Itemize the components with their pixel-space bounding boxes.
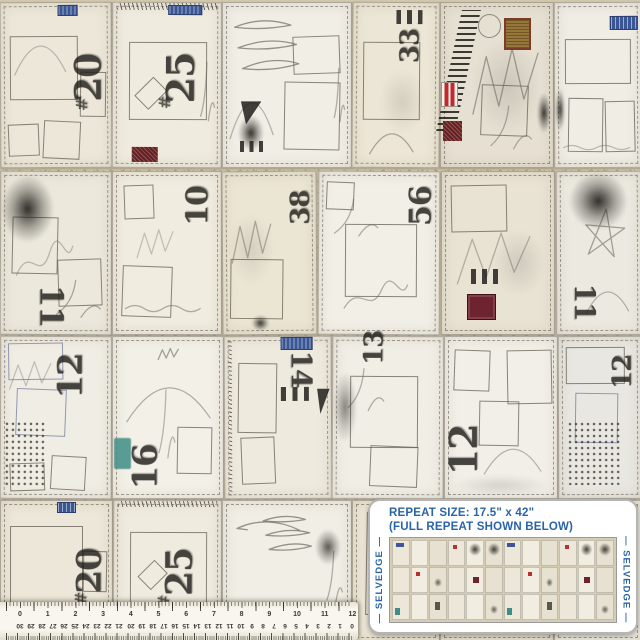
preview-patch: [522, 567, 540, 593]
ruler-inch-label: 2: [73, 611, 77, 618]
stamp-number: 33: [399, 29, 421, 63]
dash3-accent: [240, 141, 263, 152]
blue-accent: [610, 16, 638, 30]
ruler-cm-label: 27: [50, 622, 57, 629]
maroon-accent: [467, 294, 496, 320]
sketch-squiggle: [157, 345, 181, 364]
ruler-cm-label: 10: [237, 622, 244, 629]
dash3-accent: [396, 10, 422, 25]
ruler-cm-label: 25: [72, 622, 79, 629]
wash-accent: [378, 68, 426, 134]
fabric-patch: 20#: [0, 2, 112, 169]
sketch-rect: [176, 427, 212, 475]
ruler-inch-label: 1: [46, 611, 50, 618]
wash-accent: [227, 212, 274, 285]
fabric-patch: 13: [332, 336, 445, 500]
preview-patch: [466, 540, 484, 566]
preview-patch: [578, 540, 596, 566]
preview-dark-sm: [601, 605, 609, 614]
sketch-rect: [49, 455, 86, 491]
fabric-patch: 38: [221, 171, 317, 336]
ruler-cm-label: 7: [272, 622, 276, 629]
preview-patch: [522, 594, 540, 620]
fabric-patch: 12: [0, 336, 112, 499]
sketch-squiggle: [231, 515, 305, 549]
ruler-cm-label: 17: [160, 622, 167, 629]
ruler-inch-label: 9: [267, 611, 271, 618]
preview-patch: [541, 567, 559, 593]
preview-patch: [411, 540, 429, 566]
preview-dark: [467, 541, 483, 565]
selvedge-label-right: — SELVEDGE —: [619, 537, 633, 623]
preview-patch: [559, 594, 577, 620]
stamp-number: 11: [572, 283, 596, 320]
stamp-number: 11: [37, 285, 64, 328]
preview-red: [528, 572, 532, 576]
redweave-accent: [443, 121, 462, 141]
preview-patch: [411, 567, 429, 593]
ruler-cm-label: 19: [138, 622, 145, 629]
preview-patch: [504, 594, 522, 620]
preview-patch: [466, 594, 484, 620]
sketch-squiggle: [479, 426, 546, 482]
stamp-number: 20: [74, 54, 105, 102]
fabric-patch: 11: [0, 171, 112, 335]
ruler-cm-label: 9: [250, 622, 254, 629]
fabric-patch: [441, 171, 555, 335]
blue-accent: [58, 5, 78, 17]
sketch-squiggle: [562, 134, 631, 159]
ruler-cm-label: 4: [305, 622, 309, 629]
sketch-rect: [453, 349, 490, 391]
ruler-inch-label: 6: [184, 611, 188, 618]
preview-patch: [448, 594, 466, 620]
preview-dark: [579, 541, 595, 565]
preview-patch: [485, 567, 503, 593]
zzside-accent: [229, 340, 233, 495]
preview-blue: [507, 543, 515, 547]
preview-red: [416, 572, 420, 576]
stamp-number: 20: [75, 548, 104, 593]
preview-dark-sm: [434, 578, 442, 587]
stamp-number: 12: [57, 353, 86, 398]
sketch-squiggle: [329, 188, 383, 245]
sketch-squiggle: [337, 272, 412, 324]
smudge-accent: [315, 529, 341, 565]
sketch-squiggle: [333, 52, 346, 134]
stamp-number: 16: [132, 445, 161, 490]
sketch-squiggle: [7, 353, 57, 401]
preview-patch: [559, 567, 577, 593]
ruler-cm-label: 1: [339, 622, 343, 629]
ruler-cm-label: 28: [38, 622, 45, 629]
smudge-accent: [568, 172, 627, 231]
sketch-rect: [237, 363, 277, 433]
sketch-rect: [240, 436, 276, 484]
ruler-cm-label: 11: [227, 622, 234, 629]
preview-teal: [395, 608, 400, 615]
preview-maroon: [584, 577, 590, 583]
ruler-cm-label: 22: [105, 622, 112, 629]
fabric-product-image: 20#25#33111038561112161413121220#25# 012…: [0, 0, 640, 640]
ruler-cm-label: 12: [215, 622, 222, 629]
smudge-accent: [333, 372, 358, 443]
dash3-accent: [281, 387, 309, 402]
preview-patch: [392, 540, 410, 566]
fabric-patch: 10: [112, 171, 222, 335]
stamp-number: 10: [186, 186, 212, 226]
preview-dark: [486, 541, 502, 565]
sketch-squiggle: [135, 221, 178, 270]
ruler-cm-label: 8: [261, 622, 265, 629]
sketch-rect: [369, 446, 419, 489]
sketch-rect: [7, 124, 39, 157]
preview-patch: [466, 567, 484, 593]
stamp-number: 12: [612, 355, 634, 389]
ruler-ticks-inches: [6, 602, 352, 611]
wash-accent: [472, 39, 541, 134]
fabric-patch: [440, 2, 554, 168]
preview-maroon: [473, 577, 479, 583]
preview-red: [565, 545, 569, 549]
fabric-patch: 25#: [112, 2, 223, 168]
fabric-patch: 16: [112, 336, 224, 499]
preview-patch: [411, 594, 429, 620]
ruler-cm-label: 29: [27, 622, 34, 629]
fabric-patch: 11: [556, 171, 640, 335]
ruler-cm-label: 5: [294, 622, 298, 629]
ruler-cm-label: 14: [193, 622, 200, 629]
sketch-squiggle: [9, 19, 70, 85]
ruler-inch-label: 7: [212, 611, 216, 618]
fabric-patch: [554, 2, 640, 168]
stamp-number: 12: [448, 424, 480, 475]
wash-accent: [492, 229, 546, 297]
preview-patch: [448, 540, 466, 566]
ruler-cm-label: 23: [94, 622, 101, 629]
ruler-inch-label: 3: [101, 611, 105, 618]
stamp-hash: #: [158, 97, 172, 109]
preview-patch: [596, 540, 614, 566]
ruler-cm-label: 30: [16, 622, 23, 629]
full-repeat-preview: [389, 537, 617, 623]
preview-patch: [485, 540, 503, 566]
preview-patch: [504, 567, 522, 593]
ruler-inch-label: 8: [240, 611, 244, 618]
fabric-patch: [222, 2, 352, 168]
blue-accent: [57, 502, 77, 512]
fabric-patch: 12: [444, 336, 558, 499]
preview-stamp: [435, 602, 440, 610]
dots-accent: [4, 421, 46, 489]
preview-patch: [578, 567, 596, 593]
preview-patch: [541, 540, 559, 566]
stamp-number: 13: [363, 331, 385, 365]
ring-accent: [478, 14, 501, 37]
ruler-inch-label: 4: [129, 611, 133, 618]
ruler-cm-label: 21: [116, 622, 123, 629]
fabric-patch: 33: [351, 2, 440, 169]
ruler-cm-label: 16: [171, 622, 178, 629]
stamp-number: 14: [289, 351, 313, 388]
smudge-accent: [555, 88, 565, 131]
fabric-patch: 56: [318, 171, 441, 336]
preview-patch: [429, 567, 447, 593]
blue-accent: [168, 5, 202, 15]
ruler: 0123456789101112 30292827262524232221201…: [0, 602, 358, 640]
selvedge-label-left: — SELVEDGE —: [372, 537, 386, 623]
zztop-accent: [118, 501, 216, 507]
preview-blue: [396, 543, 404, 547]
smudge-accent: [537, 93, 550, 132]
ruler-inch-label: 5: [157, 611, 161, 618]
preview-patch: [596, 594, 614, 620]
dots-accent: [567, 421, 620, 486]
preview-patch: [392, 567, 410, 593]
preview-patch: [541, 594, 559, 620]
preview-patch: [504, 540, 522, 566]
stamp-number: 56: [408, 186, 434, 226]
ruler-inch-label: 10: [293, 611, 301, 618]
ruler-cm-label: 6: [283, 622, 287, 629]
ruler-cm-label: 15: [182, 622, 189, 629]
ruler-cm-label: 24: [83, 622, 90, 629]
preview-patch: [559, 540, 577, 566]
ruler-cm-label: 3: [317, 622, 321, 629]
ruler-inch-label: 11: [321, 611, 328, 618]
gold-accent: [504, 18, 532, 50]
ruler-cm-label: 18: [149, 622, 156, 629]
sketch-rect: [565, 39, 631, 84]
ruler-inch-label: 0: [18, 611, 22, 618]
sketch-squiggle: [124, 289, 202, 325]
stripes-accent: [441, 82, 458, 107]
preview-patch: [448, 567, 466, 593]
preview-dark-sm: [490, 605, 498, 614]
preview-patch: [522, 540, 540, 566]
ruler-cm-label: 26: [61, 622, 68, 629]
smudge-accent: [1, 175, 54, 243]
ruler-cm-label: 2: [328, 622, 332, 629]
stamp-hash: #: [76, 98, 90, 110]
preview-patch: [392, 594, 410, 620]
blue-accent: [281, 337, 313, 350]
preview-red: [453, 545, 457, 549]
smudge-accent: [251, 315, 270, 331]
ruler-cm-label: 0: [350, 622, 354, 629]
ruler-ticks-centimeters: [6, 633, 352, 640]
preview-patch: [578, 594, 596, 620]
ruler-inch-label: 12: [348, 611, 356, 618]
preview-patch: [429, 594, 447, 620]
preview-patch: [596, 567, 614, 593]
stamp-number: 25: [165, 548, 196, 596]
fabric-patch: 14: [224, 336, 333, 500]
ruler-cm-label: 20: [127, 622, 134, 629]
preview-teal: [507, 608, 512, 615]
wedge-accent: [317, 388, 330, 414]
repeat-info-box: REPEAT SIZE: 17.5" x 42" (FULL REPEAT SH…: [368, 499, 638, 634]
sketch-rect: [42, 120, 81, 160]
preview-dark: [597, 541, 613, 565]
wash-accent: [451, 475, 552, 494]
preview-patch: [429, 540, 447, 566]
full-repeat-note: (FULL REPEAT SHOWN BELOW): [389, 521, 573, 533]
preview-patch: [485, 594, 503, 620]
fabric-patch: 12: [558, 336, 640, 499]
preview-dark-sm: [546, 578, 554, 587]
stamp-number: 38: [290, 190, 312, 224]
redweave-accent: [132, 147, 158, 162]
preview-stamp: [547, 602, 552, 610]
ruler-cm-label: 13: [204, 622, 211, 629]
sketch-rect: [123, 184, 154, 219]
sketch-rect: [506, 349, 551, 403]
repeat-size-text: REPEAT SIZE: 17.5" x 42": [389, 507, 534, 519]
